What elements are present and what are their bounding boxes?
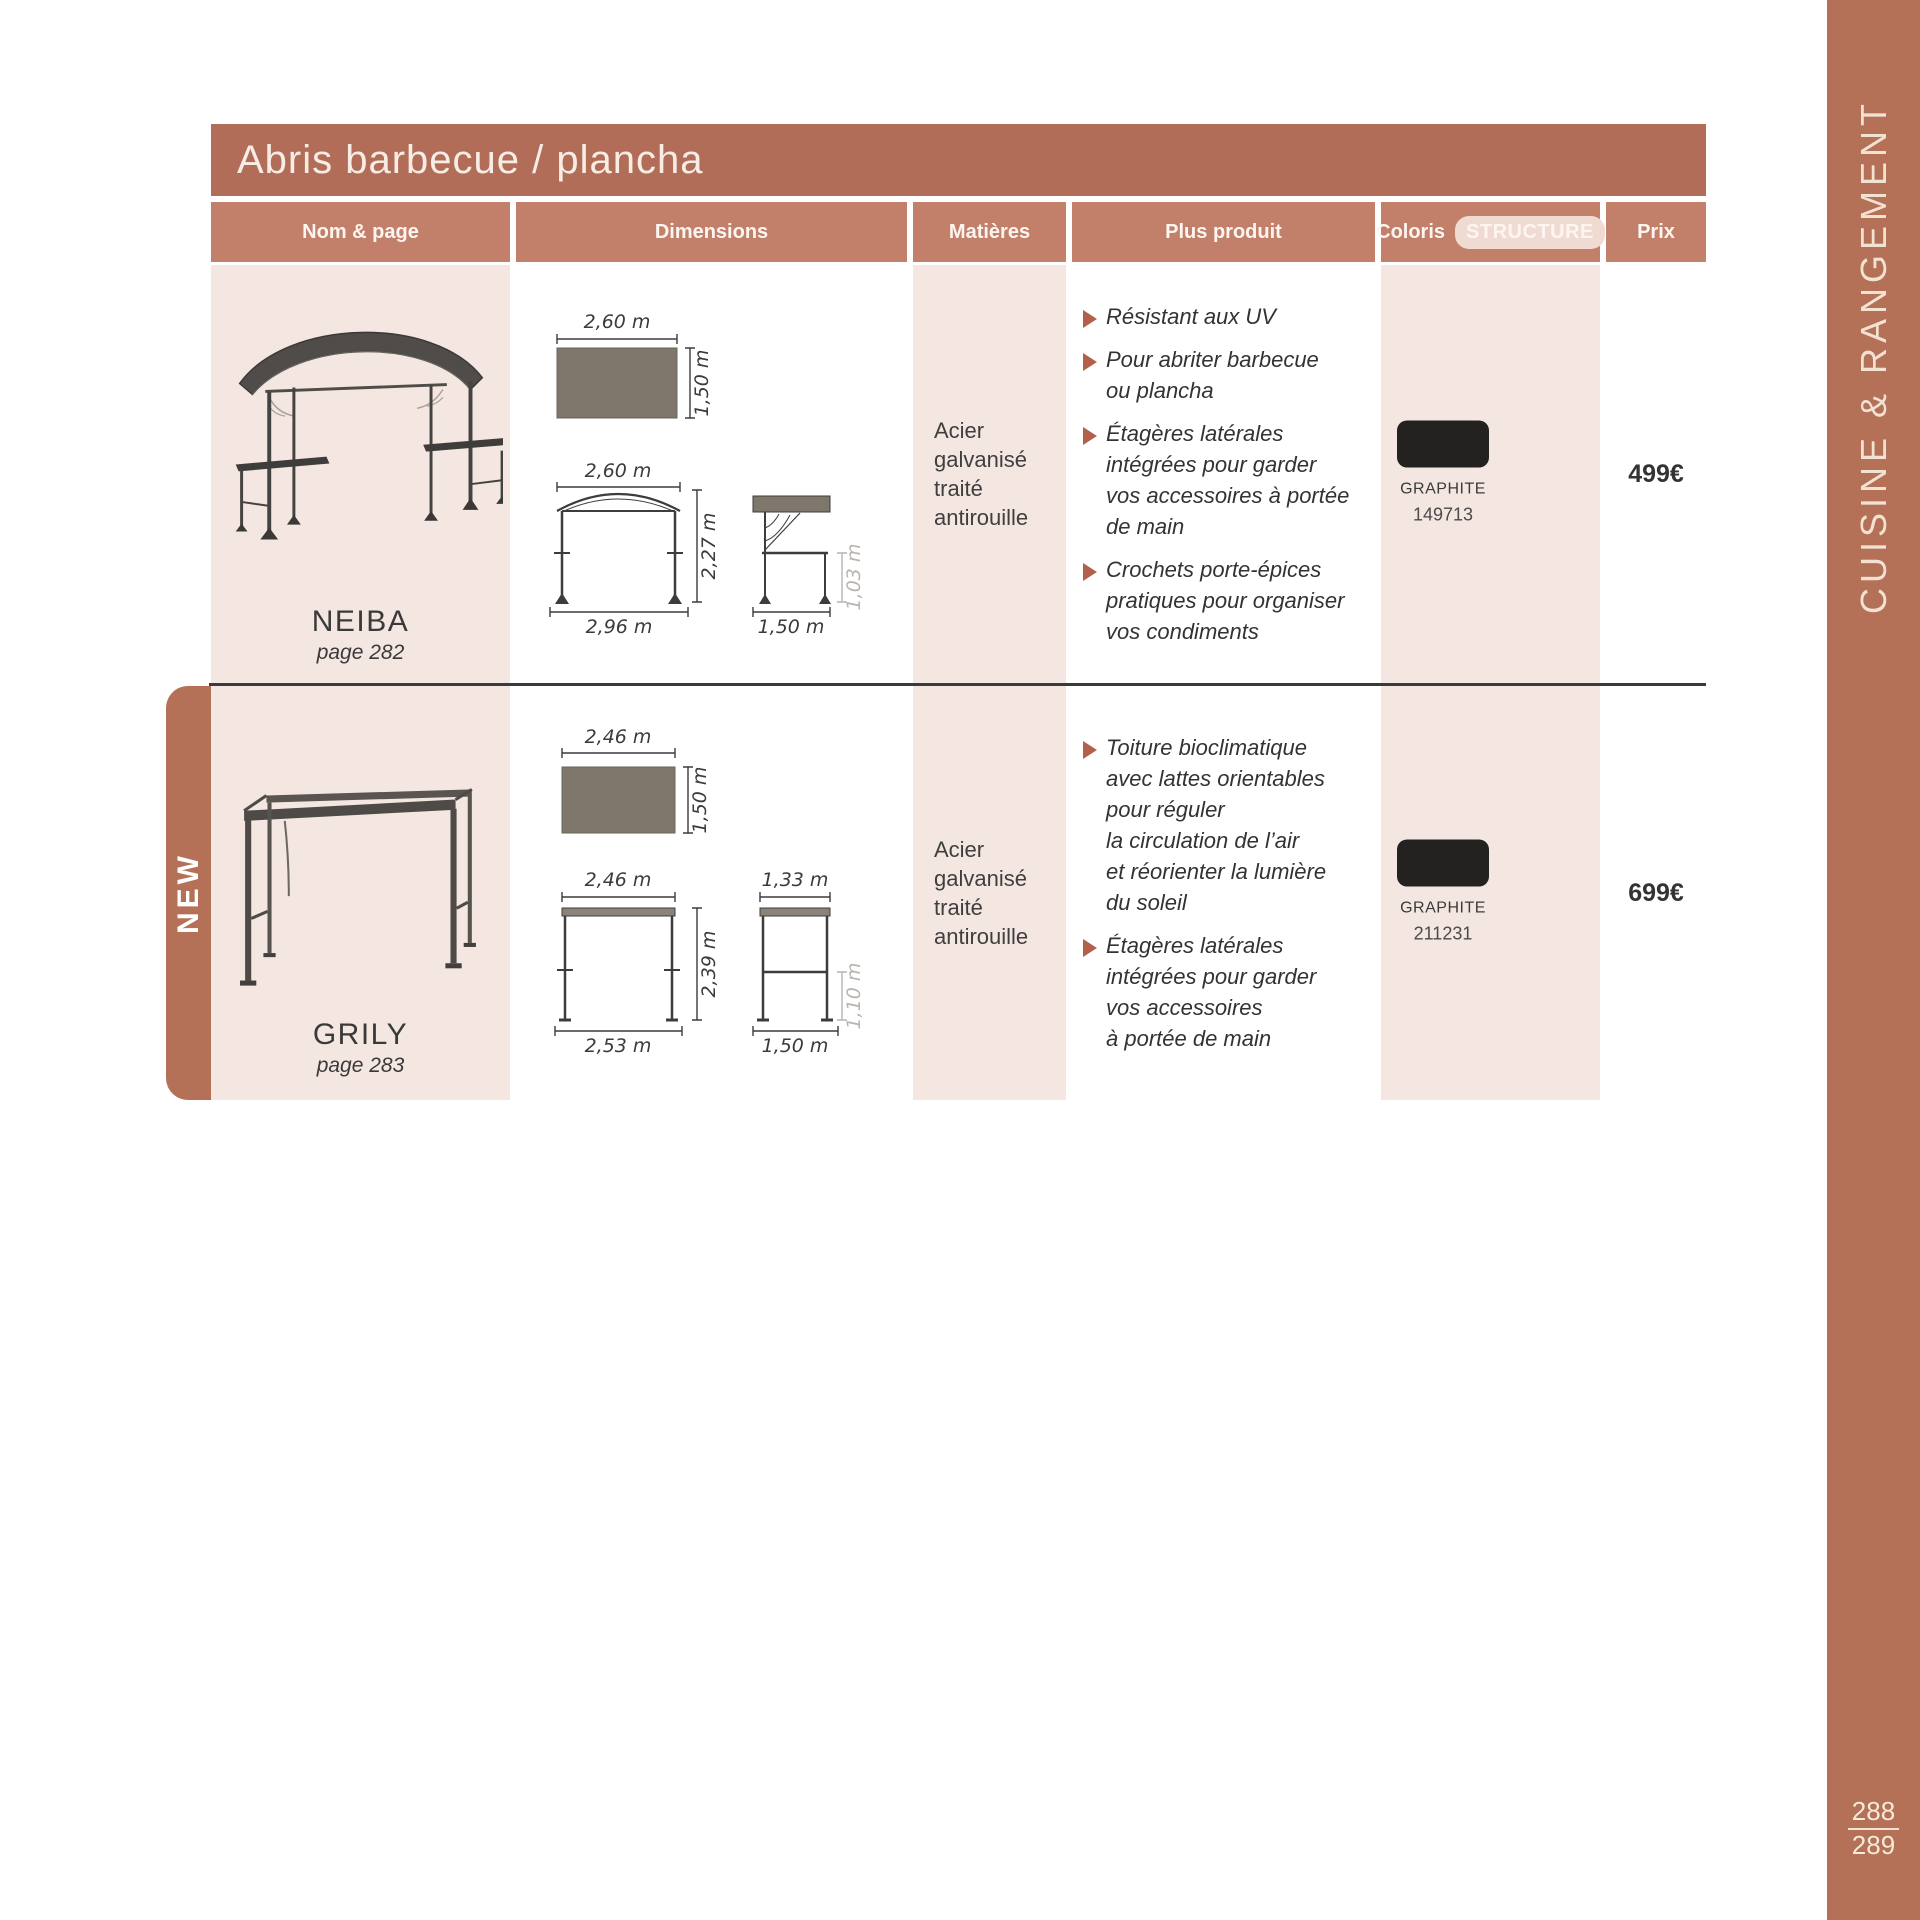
coloris-block: GRAPHITE 149713 — [1393, 421, 1493, 528]
dim-label: 2,60 m — [585, 460, 652, 482]
header-dimensions: Dimensions — [516, 202, 907, 262]
product-page-ref: page 283 — [211, 1052, 510, 1080]
grily-nom-cell: GRILY page 283 — [211, 686, 510, 1100]
product-name: GRILY — [211, 1018, 510, 1052]
feature-bullet-icon — [1083, 741, 1097, 759]
grily-plus-produit-cell: Toiture bioclimatique avec lattes orient… — [1072, 686, 1375, 1100]
dim-label: 2,53 m — [585, 1035, 652, 1057]
section-sidebar: CUISINE & RANGEMENT 288 289 — [1827, 0, 1920, 1920]
dim-label: 2,39 m — [698, 931, 720, 998]
dim-label: 2,27 m — [698, 513, 720, 580]
feature-bullet-icon — [1083, 939, 1097, 957]
dim-label: 2,60 m — [584, 311, 651, 333]
grily-matieres-cell: Acier galvanisé traité antirouille — [913, 686, 1066, 1100]
feature-bullet-icon — [1083, 563, 1097, 581]
dim-label: 2,96 m — [586, 616, 653, 638]
table-title-bar: Abris barbecue / plancha — [211, 124, 1706, 196]
neiba-coloris-cell: GRAPHITE 149713 — [1381, 265, 1600, 683]
structure-badge: STRUCTURE — [1455, 216, 1605, 249]
feature-item: Toiture bioclimatique avec lattes orient… — [1083, 732, 1371, 918]
color-name: GRAPHITE — [1393, 478, 1493, 502]
catalog-page: CUISINE & RANGEMENT 288 289 Abris barbec… — [0, 0, 1920, 1920]
dim-label: 1,33 m — [762, 869, 829, 891]
price: 699€ — [1628, 879, 1684, 908]
page-number-left: 288 — [1848, 1796, 1899, 1830]
dim-label: 1,50 m — [689, 767, 711, 834]
feature-bullet-icon — [1083, 427, 1097, 445]
dim-label: 2,46 m — [585, 869, 652, 891]
product-name: NEIBA — [211, 605, 510, 639]
neiba-name-block: NEIBA page 282 — [211, 605, 510, 667]
grily-dimensions-cell: 2,46 m 1,50 m 2,46 m 2,39 m — [516, 686, 907, 1100]
grily-dimensions-diagram: 2,46 m 1,50 m 2,46 m 2,39 m — [516, 686, 907, 1100]
dim-label: 1,03 m — [843, 544, 865, 611]
feature-bullet-icon — [1083, 310, 1097, 328]
feature-bullet-icon — [1083, 353, 1097, 371]
section-title: CUISINE & RANGEMENT — [1853, 99, 1895, 614]
color-code: 149713 — [1393, 502, 1493, 528]
page-numbers: 288 289 — [1827, 1796, 1920, 1860]
feature-item: Pour abriter barbecue ou plancha — [1083, 344, 1371, 406]
grily-name-block: GRILY page 283 — [211, 1018, 510, 1080]
table-title: Abris barbecue / plancha — [211, 138, 704, 183]
feature-item: Crochets porte-épices pratiques pour org… — [1083, 554, 1371, 647]
header-plus-produit: Plus produit — [1072, 202, 1375, 262]
feature-item: Étagères latérales intégrées pour garder… — [1083, 418, 1371, 542]
feature-item: Étagères latérales intégrées pour garder… — [1083, 930, 1371, 1054]
dim-label: 1,50 m — [758, 616, 825, 638]
header-nom-page: Nom & page — [211, 202, 510, 262]
product-page-ref: page 282 — [211, 639, 510, 667]
color-code: 211231 — [1393, 921, 1493, 947]
price: 499€ — [1628, 460, 1684, 489]
dim-label: 2,46 m — [585, 726, 652, 748]
material-text: Acier galvanisé traité antirouille — [934, 416, 1066, 532]
header-coloris: Coloris STRUCTURE — [1381, 202, 1600, 262]
neiba-prix-cell: 499€ — [1606, 265, 1706, 683]
neiba-product-image — [217, 277, 503, 573]
color-swatch-graphite — [1397, 840, 1489, 887]
new-badge: NEW — [166, 686, 211, 1100]
grily-prix-cell: 699€ — [1606, 686, 1706, 1100]
grily-product-image — [227, 766, 493, 1010]
table-row-grily: GRILY page 283 2,46 m 1,50 m 2,46 m — [211, 686, 1706, 1100]
dim-label: 1,10 m — [843, 963, 865, 1030]
feature-item: Résistant aux UV — [1083, 301, 1371, 332]
neiba-dimensions-diagram: 2,60 m 1,50 m 2,60 m — [516, 265, 907, 683]
color-swatch-graphite — [1397, 421, 1489, 468]
product-table: Abris barbecue / plancha Nom & page Dime… — [211, 124, 1706, 1104]
neiba-nom-cell: NEIBA page 282 — [211, 265, 510, 683]
material-text: Acier galvanisé traité antirouille — [934, 835, 1066, 951]
header-matieres: Matières — [913, 202, 1066, 262]
table-row-neiba: NEIBA page 282 2,60 m 1,50 m 2,60 m — [211, 265, 1706, 683]
neiba-plus-produit-cell: Résistant aux UV Pour abriter barbecue o… — [1072, 265, 1375, 683]
sidebar-title-wrap: CUISINE & RANGEMENT — [1827, 42, 1920, 672]
page-number-right: 289 — [1848, 1830, 1899, 1860]
color-name: GRAPHITE — [1393, 897, 1493, 921]
dim-label: 1,50 m — [691, 350, 713, 417]
header-prix: Prix — [1606, 202, 1706, 262]
dim-label: 1,50 m — [762, 1035, 829, 1057]
neiba-matieres-cell: Acier galvanisé traité antirouille — [913, 265, 1066, 683]
neiba-dimensions-cell: 2,60 m 1,50 m 2,60 m — [516, 265, 907, 683]
coloris-block: GRAPHITE 211231 — [1393, 840, 1493, 947]
grily-coloris-cell: GRAPHITE 211231 — [1381, 686, 1600, 1100]
